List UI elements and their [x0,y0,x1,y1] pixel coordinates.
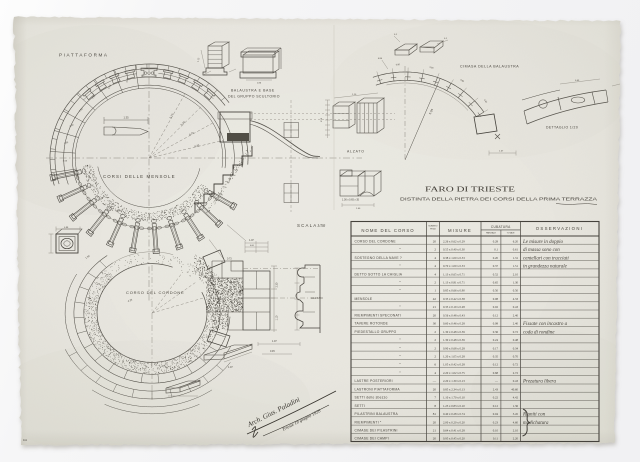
svg-text:1.13 x 0.81 x 0.71: 1.13 x 0.81 x 0.71 [443,281,465,285]
svg-text:40.60: 40.60 [511,387,518,391]
svg-text:Le misure in doppio: Le misure in doppio [522,240,563,245]
svg-text:1.07: 1.07 [249,239,254,242]
svg-text:0.38 x 1.00 x 0.53: 0.38 x 1.00 x 0.53 [443,256,465,260]
svg-text:RIEMPIMENTI ″: RIEMPIMENTI ″ [355,420,383,424]
svg-text:DETTAGLIO 1/20: DETTAGLIO 1/20 [546,126,578,130]
svg-text:OSSERVAZIONI: OSSERVAZIONI [536,226,583,231]
svg-text:MISURE: MISURE [448,228,472,233]
svg-text:MENSOLE: MENSOLE [355,297,373,301]
svg-text:CORSO DEL CORDONE: CORSO DEL CORDONE [126,290,185,295]
svg-text:2.43: 2.43 [493,387,499,391]
svg-text:0.50: 0.50 [493,289,499,293]
svg-text:ALZATO: ALZATO [311,296,323,300]
svg-text:1.30 x 0.48 x 0.59: 1.30 x 0.48 x 0.59 [443,330,465,334]
svg-text:Prezatura libera: Prezatura libera [522,380,557,385]
svg-text:0.90 x 0.68 x 0.28: 0.90 x 0.68 x 0.28 [443,346,465,350]
svg-text:0.52: 0.52 [493,272,499,276]
svg-text:2.10: 2.10 [513,272,519,276]
svg-text:2.30: 2.30 [276,282,279,287]
svg-text:1.30 x 0.48 x 0.39: 1.30 x 0.48 x 0.39 [443,338,465,342]
svg-text:1.31: 1.31 [513,256,519,260]
svg-text:1.20 x 1.05 x 0.28: 1.20 x 1.05 x 0.28 [443,354,465,358]
svg-text:—: — [432,379,437,383]
svg-text:0.11: 0.11 [493,437,499,441]
svg-text:0.34: 0.34 [513,346,519,350]
svg-text:1.36: 1.36 [513,404,519,408]
svg-text:0.48: 0.48 [513,338,519,342]
svg-text:0.85 x 0.66 x 0.90: 0.85 x 0.66 x 0.90 [443,289,465,293]
svg-text:0.43: 0.43 [513,379,519,383]
svg-text:0.35 x 0.19 x 0.28: 0.35 x 0.19 x 0.28 [443,305,465,309]
svg-text:0.50: 0.50 [513,289,519,293]
svg-text:0.55 x 0.40 x 0.30: 0.55 x 0.40 x 0.30 [443,248,465,252]
svg-text:0.35 x 0.42 x 0.58: 0.35 x 0.42 x 0.58 [443,297,465,301]
svg-text:0.36: 0.36 [493,330,499,334]
svg-text:0.08: 0.08 [493,297,499,301]
svg-text:di massa sono con: di massa sono con [523,248,560,253]
svg-text:1.23 x 0.83 x 0.10: 1.23 x 0.83 x 0.10 [443,404,465,408]
svg-text:SETTI dello sbezzo: SETTI dello sbezzo [355,396,388,400]
svg-text:1.35: 1.35 [123,116,129,120]
svg-text:coda di rondine: coda di rondine [523,330,555,335]
svg-text:Fissate con incastro a: Fissate con incastro a [522,322,568,327]
svg-text:FARO DI TRIESTE: FARO DI TRIESTE [425,185,515,194]
svg-text:BALAUSTRA E BASE: BALAUSTRA E BASE [231,89,275,93]
svg-text:2.20 x 1.30 x 0.13: 2.20 x 1.30 x 0.13 [443,379,465,383]
svg-text:0.10: 0.10 [493,428,499,432]
svg-text:2.26 x 0.62 x 0.29: 2.26 x 0.62 x 0.29 [443,239,465,243]
svg-text:in grandezza naturale: in grandezza naturale [523,265,568,270]
svg-text:PARZIALE: PARZIALE [486,232,497,235]
svg-text:1.13 x 0.65 x 0.71: 1.13 x 0.65 x 0.71 [443,272,465,276]
svg-text:0.56 x 0.48 x 0.43: 0.56 x 0.48 x 0.43 [443,313,465,317]
svg-text:Riuniti con: Riuniti con [522,413,546,418]
svg-text:SOSTEGNO DELLA NAVE ?: SOSTEGNO DELLA NAVE ? [355,256,403,260]
svg-text:0.20: 0.20 [493,256,499,260]
svg-text:2.72: 2.72 [513,371,519,375]
svg-text:LASTRE POSTERIORI: LASTRE POSTERIORI [355,379,393,383]
svg-text:0.17: 0.17 [493,346,499,350]
svg-text:4.42: 4.42 [513,396,519,400]
svg-text:0.45: 0.45 [270,350,275,353]
svg-text:0.64 x 0.41 x 0.28: 0.64 x 0.41 x 0.28 [443,428,465,432]
svg-text:20: 20 [433,437,437,441]
svg-text:CORSO DEL CORDONE: CORSO DEL CORDONE [355,239,397,243]
svg-text:DISTINTA DELLA PIETRA DEI COR: DISTINTA DELLA PIETRA DEI CORSI DELLA PR… [400,197,597,202]
svg-text:0.60 x 0.46 x 0.28: 0.60 x 0.46 x 0.28 [443,322,465,326]
svg-text:NUMERO: NUMERO [429,226,438,228]
svg-text:0.22: 0.22 [493,396,499,400]
svg-text:0.40 x 0.28 x 0.74: 0.40 x 0.28 x 0.74 [443,412,465,416]
svg-text:0.72: 0.72 [513,330,519,334]
svg-text:PILASTRINI BALAUSTRA: PILASTRINI BALAUSTRA [355,412,399,416]
svg-text:PIATTAFORMA: PIATTAFORMA [59,53,109,58]
svg-text:0.28: 0.28 [493,239,499,243]
svg-text:TAVERE ROTONDE: TAVERE ROTONDE [355,322,389,326]
svg-text:0.1: 0.1 [494,248,498,252]
svg-text:0.04: 0.04 [493,412,499,416]
svg-text:ALZATO: ALZATO [347,150,365,154]
svg-text:4.60: 4.60 [513,420,519,424]
svg-text:0.24: 0.24 [493,338,499,342]
svg-text:1.07: 1.07 [272,340,277,343]
svg-text:PEZZI: PEZZI [430,229,436,231]
svg-text:PIEDESTALLO GRUPPO: PIEDESTALLO GRUPPO [355,330,397,334]
svg-text:81: 81 [433,412,437,416]
svg-text:DETTO SOTTO LA CHIGLIA: DETTO SOTTO LA CHIGLIA [355,272,403,276]
svg-text:21: 21 [433,428,437,432]
svg-text:2.20: 2.20 [513,437,519,441]
svg-text:0.08: 0.08 [493,322,499,326]
svg-text:0.61: 0.61 [513,248,519,252]
svg-text:0.95 x 0.45 x 0.20: 0.95 x 0.45 x 0.20 [443,437,465,441]
svg-text:CIMASE DEI PILASTRINI: CIMASE DEI PILASTRINI [355,428,398,432]
svg-text:0.35: 0.35 [493,354,499,358]
svg-text:0.70: 0.70 [513,354,519,358]
svg-text:2.20 x 1.02 x 0.75: 2.20 x 1.02 x 0.75 [443,371,465,375]
svg-text:NOME DEL CORSO: NOME DEL CORSO [361,228,414,233]
svg-text:2.10: 2.10 [513,428,519,432]
svg-text:CUBATURA: CUBATURA [491,225,511,229]
svg-text:0.65: 0.65 [493,281,499,285]
svg-text:SCALA: SCALA [297,223,317,228]
svg-text:20: 20 [433,420,437,424]
svg-text:1.00 x 0.65 x 35: 1.00 x 0.65 x 35 [342,199,360,202]
svg-text:1.30: 1.30 [513,281,519,285]
svg-text:centellari con tracciati: centellari con tracciati [523,256,569,261]
svg-text:0.73: 0.73 [227,258,232,261]
svg-text:RIEMPIMENTI SPECONATI: RIEMPIMENTI SPECONATI [355,313,402,317]
svg-text:0.43: 0.43 [513,305,519,309]
svg-text:20: 20 [433,239,437,243]
svg-text:1.51: 1.51 [513,264,519,268]
svg-text:0.12: 0.12 [493,313,499,317]
svg-text:3.45: 3.45 [513,412,519,416]
svg-text:20: 20 [433,313,437,317]
svg-text:30: 30 [433,322,437,326]
svg-text:1.10: 1.10 [276,315,279,320]
svg-text:0.72: 0.72 [513,363,519,367]
svg-text:CORSI DELLE MENSOLE: CORSI DELLE MENSOLE [103,174,176,179]
svg-text:0.12: 0.12 [493,404,499,408]
svg-text:0.02: 0.02 [493,305,499,309]
svg-text:0.37: 0.37 [493,264,499,268]
svg-text:1/50: 1/50 [317,223,326,228]
svg-text:TOTALE: TOTALE [507,232,516,235]
svg-text:0.23: 0.23 [493,420,499,424]
svg-text:42: 42 [433,297,437,301]
svg-text:2.40: 2.40 [513,313,519,317]
svg-text:0.70 x 1.00 x 0.53: 0.70 x 1.00 x 0.53 [443,264,465,268]
svg-text:1.07: 1.07 [228,366,233,369]
svg-text:LASTRONI PIATTAFORMA: LASTRONI PIATTAFORMA [355,387,401,391]
svg-text:CIMASA DELLA BALAUSTRA: CIMASA DELLA BALAUSTRA [460,65,519,69]
svg-text:111: 111 [23,438,27,442]
svg-text:21: 21 [433,305,437,309]
svg-text:6.20: 6.20 [513,239,519,243]
svg-text:2.00 x 0.20 x 0.20: 2.00 x 0.20 x 0.20 [443,420,465,424]
svg-text:SETTI: SETTI [355,404,366,408]
svg-text:20: 20 [433,387,437,391]
svg-text:0.12: 0.12 [493,363,499,367]
svg-text:0.85 x 2.34 x 0.13: 0.85 x 2.34 x 0.13 [443,387,465,391]
svg-text:4.33: 4.33 [513,297,519,301]
svg-text:1.05 x 0.42 x 0.28: 1.05 x 0.42 x 0.28 [443,363,465,367]
svg-text:2.40: 2.40 [513,322,519,326]
svg-text:1.10 x 1.70 x 0.10: 1.10 x 1.70 x 0.10 [443,396,465,400]
svg-text:DEL GRUPPO SCULTORIO: DEL GRUPPO SCULTORIO [228,95,280,99]
svg-text:0.68: 0.68 [493,371,499,375]
svg-text:CIMASE DEI CAMPI: CIMASE DEI CAMPI [355,437,389,441]
